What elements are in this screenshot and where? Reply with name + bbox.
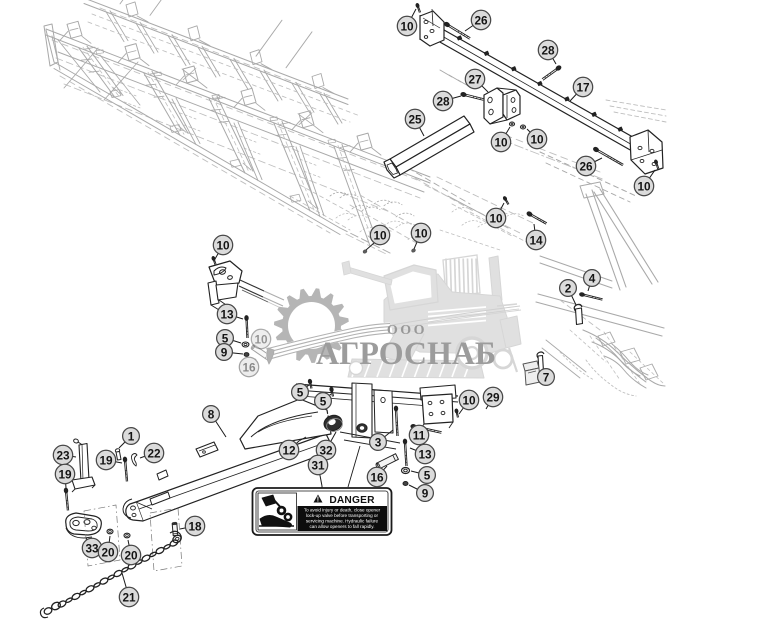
svg-text:21: 21 xyxy=(122,590,136,604)
svg-text:10: 10 xyxy=(489,211,503,225)
svg-text:10: 10 xyxy=(216,238,230,252)
svg-text:9: 9 xyxy=(221,345,228,359)
svg-text:26: 26 xyxy=(474,13,488,27)
svg-text:32: 32 xyxy=(319,443,333,457)
svg-text:26: 26 xyxy=(579,159,593,173)
svg-text:10: 10 xyxy=(254,332,268,346)
svg-text:11: 11 xyxy=(413,428,426,442)
svg-text:25: 25 xyxy=(408,112,422,126)
svg-text:19: 19 xyxy=(58,467,72,481)
svg-text:2: 2 xyxy=(565,281,572,295)
svg-text:10: 10 xyxy=(462,393,476,407)
svg-text:20: 20 xyxy=(124,548,138,562)
svg-text:12: 12 xyxy=(282,443,296,457)
svg-text:27: 27 xyxy=(468,72,482,86)
svg-text:13: 13 xyxy=(418,447,432,461)
svg-text:4: 4 xyxy=(589,271,596,285)
svg-text:16: 16 xyxy=(370,470,384,484)
svg-text:5: 5 xyxy=(297,385,304,399)
svg-text:10: 10 xyxy=(494,135,508,149)
svg-text:10: 10 xyxy=(373,228,387,242)
svg-text:28: 28 xyxy=(436,94,450,108)
svg-text:31: 31 xyxy=(311,458,325,472)
svg-text:17: 17 xyxy=(576,80,590,94)
svg-text:19: 19 xyxy=(99,453,113,467)
svg-text:16: 16 xyxy=(242,360,256,374)
svg-text:can allow openers to fall rapi: can allow openers to fall rapidly. xyxy=(309,524,374,529)
svg-text:10: 10 xyxy=(400,19,414,33)
svg-text:18: 18 xyxy=(188,519,202,533)
svg-text:14: 14 xyxy=(529,233,543,247)
svg-text:28: 28 xyxy=(541,43,555,57)
svg-text:To avoid injury or death, clos: To avoid injury or death, close opener xyxy=(304,508,381,513)
svg-text:lock-up valve before transport: lock-up valve before transporting or xyxy=(306,513,378,518)
svg-text:10: 10 xyxy=(637,179,651,193)
svg-text:1: 1 xyxy=(128,429,135,443)
svg-text:DANGER: DANGER xyxy=(329,495,375,506)
svg-text:9: 9 xyxy=(422,486,429,500)
svg-text:20: 20 xyxy=(101,545,115,559)
svg-text:7: 7 xyxy=(543,370,550,384)
svg-text:10: 10 xyxy=(530,132,544,146)
svg-text:!: ! xyxy=(317,496,319,503)
svg-text:servicing machine. Hydraulic: servicing machine. Hydraulic failure xyxy=(306,519,379,524)
svg-text:3: 3 xyxy=(375,435,382,449)
svg-text:10: 10 xyxy=(414,226,428,240)
svg-text:13: 13 xyxy=(220,307,234,321)
svg-text:5: 5 xyxy=(320,394,327,408)
svg-text:33: 33 xyxy=(85,541,99,555)
svg-text:5: 5 xyxy=(424,468,431,482)
svg-text:29: 29 xyxy=(486,390,500,404)
svg-text:8: 8 xyxy=(208,407,215,421)
svg-text:АГРОСНАБ: АГРОСНАБ xyxy=(316,336,496,372)
svg-text:23: 23 xyxy=(56,448,70,462)
svg-text:22: 22 xyxy=(147,446,161,460)
